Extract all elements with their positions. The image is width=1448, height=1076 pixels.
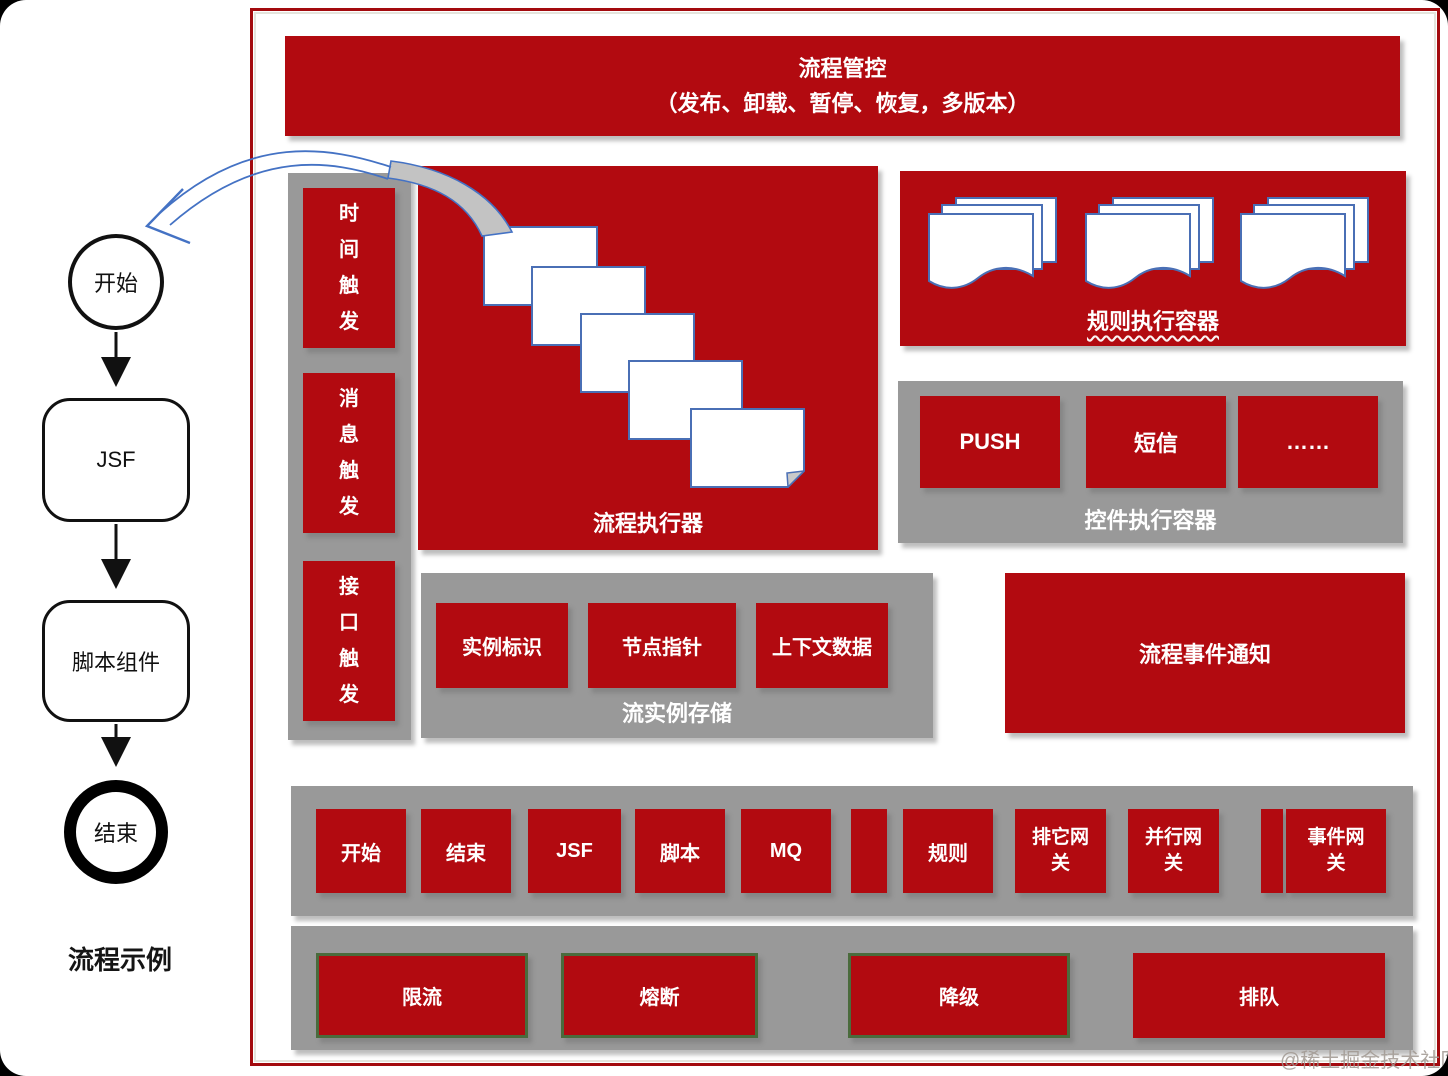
context-data-label: 上下文数据 bbox=[772, 631, 872, 660]
node-script-box: 脚本 bbox=[635, 809, 725, 893]
trigger-message: 消息触发 bbox=[303, 373, 395, 533]
document-stack-icon bbox=[1240, 197, 1375, 302]
node-start-label: 开始 bbox=[341, 837, 381, 866]
instance-id-box: 实例标识 bbox=[436, 603, 568, 688]
diagram-canvas: 开始 JSF 脚本组件 结束 流程示例 流程管控 （发布、卸载、暂停、恢复，多版… bbox=[0, 0, 1448, 1076]
node-event-gateway-label: 事件网关 bbox=[1308, 825, 1365, 876]
context-data-box: 上下文数据 bbox=[756, 603, 888, 688]
circuit-break-box: 熔断 bbox=[561, 953, 758, 1038]
node-box-fragment bbox=[1261, 809, 1283, 893]
instance-store-box: 实例标识 节点指针 上下文数据 流实例存储 bbox=[421, 573, 933, 738]
widget-more-box: …… bbox=[1238, 396, 1378, 488]
widget-more-label: …… bbox=[1286, 429, 1330, 455]
queue-box: 排队 bbox=[1133, 953, 1385, 1038]
trigger-interface: 接口触发 bbox=[303, 561, 395, 721]
trigger-message-label: 消息触发 bbox=[337, 381, 361, 525]
degrade-label: 降级 bbox=[939, 981, 979, 1010]
node-parallel-gateway-box: 并行网关 bbox=[1128, 809, 1219, 893]
widget-push-label: PUSH bbox=[959, 429, 1020, 455]
instance-store-label: 流实例存储 bbox=[421, 696, 933, 728]
rate-limit-label: 限流 bbox=[402, 981, 442, 1010]
banner-subtitle: （发布、卸载、暂停、恢复，多版本） bbox=[655, 86, 1029, 121]
banner-title: 流程管控 bbox=[798, 51, 886, 86]
node-type-row: 开始 结束 JSF 脚本 MQ 规则 排它网关 并行网关 bbox=[291, 786, 1413, 916]
curved-pointer-arrow-icon bbox=[0, 0, 560, 280]
document-stack-icon bbox=[928, 197, 1063, 302]
resilience-row: 限流 熔断 降级 排队 bbox=[291, 926, 1413, 1050]
queue-label: 排队 bbox=[1239, 981, 1279, 1010]
node-jsf-label: JSF bbox=[556, 840, 593, 863]
node-script-label: 脚本 bbox=[660, 837, 700, 866]
node-exclusive-gateway-box: 排它网关 bbox=[1015, 809, 1106, 893]
node-parallel-gateway-label: 并行网关 bbox=[1145, 825, 1202, 876]
node-pointer-box: 节点指针 bbox=[588, 603, 736, 688]
node-event-gateway-box: 事件网关 bbox=[1286, 809, 1386, 893]
node-rule-label: 规则 bbox=[928, 837, 968, 866]
node-pointer-label: 节点指针 bbox=[622, 631, 702, 660]
event-notify-box: 流程事件通知 bbox=[1005, 573, 1405, 733]
node-mq-box: MQ bbox=[741, 809, 831, 893]
circuit-break-label: 熔断 bbox=[640, 981, 680, 1010]
process-executor-label: 流程执行器 bbox=[418, 506, 878, 538]
folded-page-icon bbox=[690, 408, 805, 488]
node-end-box: 结束 bbox=[421, 809, 511, 893]
node-box-fragment bbox=[851, 809, 887, 893]
degrade-box: 降级 bbox=[848, 953, 1070, 1038]
widget-container-label: 控件执行容器 bbox=[898, 503, 1403, 535]
node-jsf-box: JSF bbox=[528, 809, 621, 893]
node-mq-label: MQ bbox=[770, 840, 802, 863]
trigger-interface-label: 接口触发 bbox=[337, 569, 361, 713]
event-notify-label: 流程事件通知 bbox=[1139, 637, 1271, 669]
document-stack-icon bbox=[1085, 197, 1220, 302]
node-exclusive-gateway-label: 排它网关 bbox=[1032, 825, 1089, 876]
rule-container-box: 规则执行容器 bbox=[900, 171, 1406, 346]
rule-container-label: 规则执行容器 bbox=[900, 304, 1406, 336]
widget-container-box: PUSH 短信 …… 控件执行容器 bbox=[898, 381, 1403, 543]
watermark-text: @稀土掘金技术社区 bbox=[1280, 1044, 1448, 1073]
rate-limit-box: 限流 bbox=[316, 953, 528, 1038]
instance-id-label: 实例标识 bbox=[462, 631, 542, 660]
node-start-box: 开始 bbox=[316, 809, 406, 893]
node-end-label: 结束 bbox=[446, 837, 486, 866]
widget-push-box: PUSH bbox=[920, 396, 1060, 488]
widget-sms-label: 短信 bbox=[1134, 426, 1178, 458]
widget-sms-box: 短信 bbox=[1086, 396, 1226, 488]
node-rule-box: 规则 bbox=[903, 809, 993, 893]
